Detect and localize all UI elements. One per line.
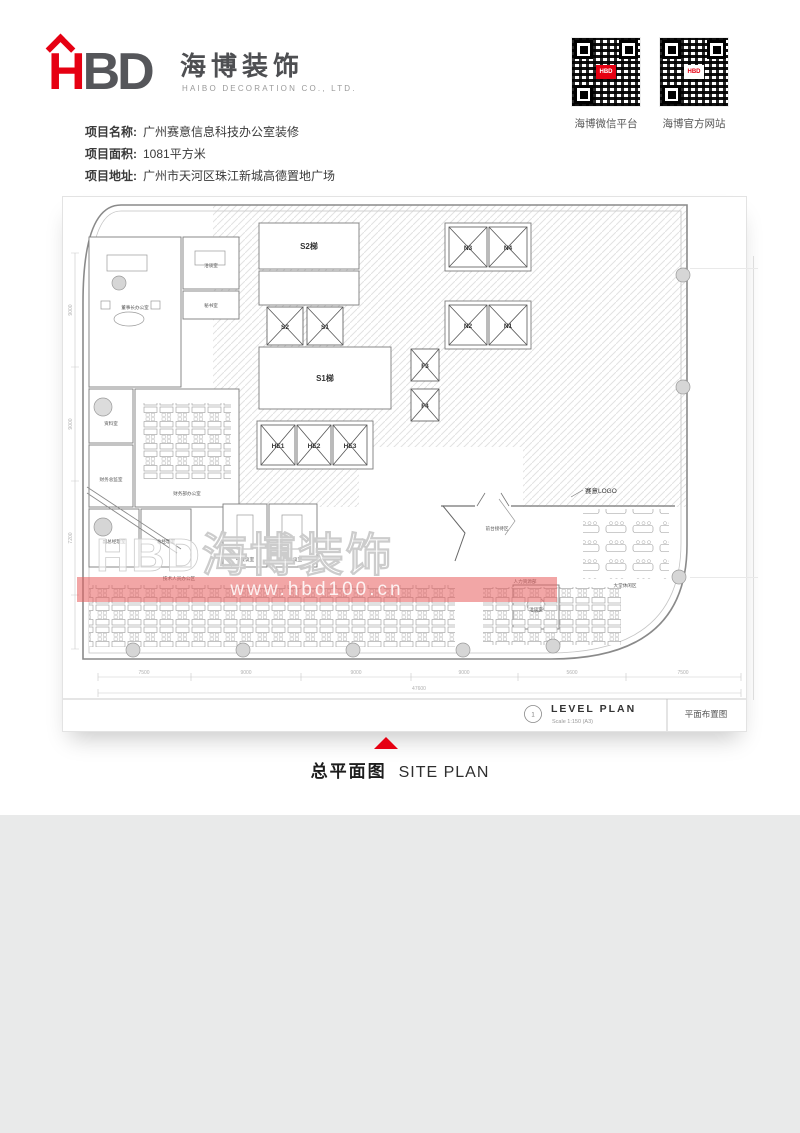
title-block-circle-num: 1 (531, 713, 535, 719)
qrcode-website-label: 海博官方网站 (660, 116, 728, 131)
company-name-cn: 海博装饰 (180, 46, 304, 83)
svg-text:资料室: 资料室 (104, 420, 118, 427)
section-title-cn: 总平面图 (311, 762, 387, 781)
svg-text:HE3: HE3 (344, 443, 357, 450)
watermark-text: HBD海博装饰 (96, 529, 394, 581)
project-name-row: 项目名称:广州赛意信息科技办公室装修 (85, 121, 335, 143)
qr-finder-icon (619, 40, 638, 59)
finance-desks (143, 403, 231, 479)
project-name-label: 项目名称: (85, 125, 137, 139)
svg-text:财务部办公室: 财务部办公室 (173, 490, 201, 497)
svg-text:9000: 9000 (458, 670, 469, 676)
title-block-lines (63, 699, 746, 731)
svg-text:大堂休闲区: 大堂休闲区 (614, 582, 637, 589)
level-plan-scale: Scale 1:150 (A3) (552, 719, 593, 725)
svg-text:7200: 7200 (68, 532, 74, 543)
project-area-label: 项目面积: (85, 147, 137, 161)
svg-text:S2: S2 (281, 324, 289, 331)
right-margin-ext-line (690, 577, 758, 578)
svg-text:秘书室: 秘书室 (204, 302, 218, 309)
lobby-sofas (583, 509, 669, 579)
project-addr-value: 广州市天河区珠江新城高德置地广场 (143, 169, 335, 183)
section-title-en: SITE PLAN (399, 764, 490, 781)
svg-text:47600: 47600 (412, 686, 426, 692)
svg-text:9000: 9000 (350, 670, 361, 676)
svg-text:S1: S1 (321, 324, 329, 331)
stair-s2-label: S2梯 (300, 241, 318, 251)
svg-text:N2: N2 (464, 323, 473, 330)
svg-text:7500: 7500 (138, 670, 149, 676)
svg-text:N4: N4 (504, 245, 513, 252)
floor-plan-sheet: S2 S1 N3 N4 N2 N1 F3 F4 HE1 HE2 HE3 S2梯 … (62, 196, 747, 732)
qr-center-badge: HBD (684, 65, 704, 79)
logo-letters: HBD (48, 42, 152, 102)
red-triangle-icon (374, 737, 398, 749)
project-area-value: 1081平方米 (143, 147, 206, 161)
title-block-right-label: 平面布置图 (685, 709, 728, 719)
level-plan-title: LEVEL PLAN (551, 703, 636, 715)
qr-finder-icon (574, 85, 593, 104)
project-name-value: 广州赛意信息科技办公室装修 (143, 125, 299, 139)
page: HBD 海博装饰 HAIBO DECORATION CO., LTD. HBD … (0, 0, 800, 1133)
qrcode-wechat-label: 海博微信平台 (572, 116, 640, 131)
gallery-band: SiE BURN! BURN! (0, 815, 800, 1133)
round-table (94, 398, 112, 416)
svg-text:9000: 9000 (240, 670, 251, 676)
svg-text:F3: F3 (421, 363, 429, 370)
svg-text:洽谈室: 洽谈室 (529, 606, 543, 613)
project-addr-row: 项目地址:广州市天河区珠江新城高德置地广场 (85, 165, 335, 187)
stair-s1-label: S1梯 (316, 373, 334, 383)
right-margin-dim-line (753, 256, 754, 700)
svg-text:董事长办公室: 董事长办公室 (121, 304, 149, 311)
svg-text:9000: 9000 (68, 304, 74, 315)
svg-text:9000: 9000 (68, 418, 74, 429)
qr-finder-icon (574, 40, 593, 59)
logo-letter-h: H (48, 43, 83, 101)
svg-text:前台接待区: 前台接待区 (486, 525, 509, 532)
svg-text:F4: F4 (421, 403, 429, 410)
corridor-white (359, 447, 523, 507)
right-margin-ext-line (690, 268, 758, 269)
svg-text:HE1: HE1 (272, 443, 285, 450)
svg-text:财务总监室: 财务总监室 (100, 476, 123, 483)
qr-finder-icon (662, 85, 681, 104)
company-name-en: HAIBO DECORATION CO., LTD. (182, 84, 357, 93)
svg-text:5600: 5600 (566, 670, 577, 676)
reception-glass-wall (443, 506, 465, 561)
floor-plan-drawing: S2 S1 N3 N4 N2 N1 F3 F4 HE1 HE2 HE3 S2梯 … (63, 197, 746, 731)
project-info: 项目名称:广州赛意信息科技办公室装修 项目面积:1081平方米 项目地址:广州市… (85, 121, 335, 187)
svg-text:N1: N1 (504, 323, 513, 330)
qr-finder-icon (662, 40, 681, 59)
watermark-url: www.hbd100.cn (229, 579, 403, 600)
svg-text:N3: N3 (464, 245, 473, 252)
logo-letters-bd: BD (83, 43, 152, 101)
qrcode-website: HBD (660, 38, 728, 106)
qr-center-badge: HBD (596, 65, 616, 79)
qr-finder-icon (707, 40, 726, 59)
client-logo-label: 赛意LOGO (585, 486, 617, 495)
svg-text:7500: 7500 (677, 670, 688, 676)
project-addr-label: 项目地址: (85, 169, 137, 183)
project-area-row: 项目面积:1081平方米 (85, 143, 335, 165)
section-title: 总平面图SITE PLAN (0, 757, 800, 782)
qrcode-wechat: HBD (572, 38, 640, 106)
svg-text:洽谈室: 洽谈室 (204, 262, 218, 269)
svg-text:HE2: HE2 (308, 443, 321, 450)
